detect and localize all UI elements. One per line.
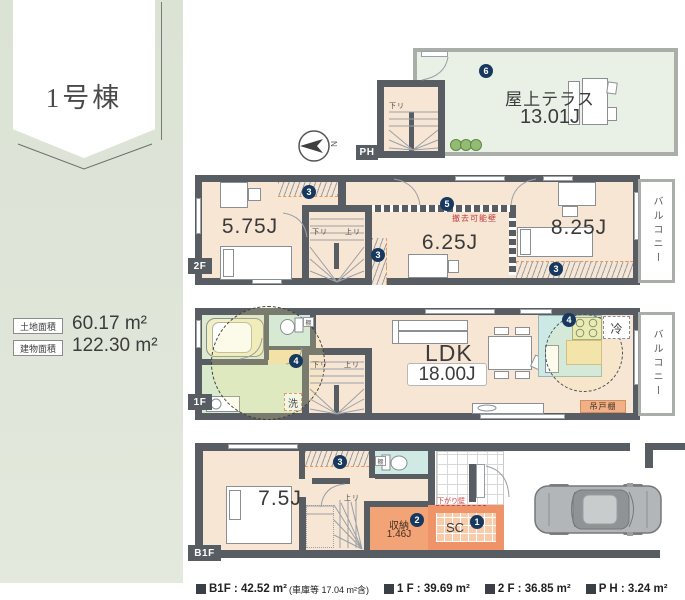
footer-area-summary: B1F : 42.52 m² (車庫等 17.04 m²含) 1 F : 39.…: [196, 580, 685, 598]
floor-tag-ph: PH: [356, 145, 378, 160]
f1-stair-rail: [334, 385, 339, 413]
land-area-label: 土地面積: [20, 320, 56, 333]
hanging-cupboard-label: 吊戸棚: [580, 400, 626, 413]
terrace-chair: [607, 107, 617, 121]
square-bull et-icon: [485, 584, 495, 594]
b1-garage-top-wall: [428, 443, 630, 451]
room-label-6-25j: 6.25J: [405, 231, 495, 255]
building-area-label-box: 建物面積: [13, 340, 63, 356]
marker-2: 2: [410, 513, 424, 527]
dropped-wall-note: 下がり壁: [437, 496, 465, 506]
b1-bottom-wall: [428, 550, 660, 558]
marker-4: 4: [289, 354, 303, 368]
b1-inner-wall: [299, 451, 305, 479]
room-label-7-5j: 7.5J: [238, 487, 322, 511]
f1-tv-board: [472, 403, 544, 414]
f2-stair-up-label: 上リ: [345, 227, 361, 237]
marker-1: 1: [470, 515, 484, 529]
f2-chair: [448, 260, 459, 273]
room-label-5-75j: 5.75J: [208, 215, 292, 239]
marker-3: 3: [549, 262, 563, 276]
square-bullet-icon: [586, 584, 596, 594]
ph-terrace-door-leaf: [421, 51, 448, 57]
f1-shelf-label: 棚: [303, 317, 314, 327]
marker-5: 5: [440, 197, 454, 211]
b1-stair-up-label: 上リ: [344, 493, 360, 503]
f2-balcony-label-wrap: バルコニー: [638, 184, 675, 278]
b1-inner-wall: [375, 474, 428, 479]
b1-inner-wall: [312, 478, 350, 484]
f2-balcony-label: バルコニー: [649, 196, 664, 266]
f1-stair-up-label: 上リ: [344, 360, 360, 370]
f1-dining-table: [488, 336, 532, 370]
b1-entrance-door-leaf: [476, 464, 485, 498]
f1-chair: [494, 371, 509, 379]
terrace-size: 13.01J: [495, 106, 605, 129]
removable-wall-note: 撤去可能壁: [452, 213, 497, 224]
f1-window: [196, 320, 201, 348]
floor-plan-canvas: 土地面積 60.17 m² 建物面積 122.30 m²: [0, 0, 685, 600]
storage-size: 1.46J: [376, 529, 422, 540]
f2-chair: [248, 188, 261, 201]
f1-chair: [515, 327, 530, 335]
marker-3: 3: [302, 185, 316, 199]
ldk-size-box: 18.00J: [407, 363, 487, 386]
f1-window: [425, 309, 495, 314]
f2-desk: [558, 182, 596, 206]
floor-tag-1f: 1F: [188, 394, 212, 410]
f2-stair-down-label: 下リ: [312, 227, 328, 237]
banner-title: 1号棟: [13, 76, 155, 115]
f1-stair-right-wall: [365, 355, 372, 413]
building-area-value: 122.30 m²: [72, 335, 158, 357]
f2-removable-wall-v: [509, 212, 516, 275]
land-area-label-box: 土地面積: [13, 318, 63, 334]
banner-accent-line: [161, 2, 162, 140]
footer-item-text: 1 F : 39.69 m²: [397, 583, 470, 595]
f2-desk: [220, 182, 248, 208]
car-illustration: [535, 483, 661, 536]
land-area-value: 60.17 m²: [72, 313, 147, 335]
building-area-label: 建物面積: [20, 342, 56, 355]
marker-6: 6: [479, 64, 493, 78]
room-label-8-25j: 8.25J: [533, 216, 625, 240]
f2-pillow: [520, 229, 531, 255]
footer-item: B1F : 42.52 m² (車庫等 17.04 m²含): [196, 583, 369, 596]
f1-chair: [494, 327, 509, 335]
footer-item-note: (車庫等 17.04 m²含): [289, 583, 369, 596]
f2-window: [455, 176, 505, 181]
square-bullet-icon: [384, 584, 394, 594]
footer-item: 1 F : 39.69 m²: [384, 583, 470, 595]
square-bullet-icon: [196, 584, 206, 594]
b1-wall-cap: [645, 443, 653, 468]
f1-window: [520, 309, 552, 314]
f1-balcony-label-wrap: バルコニー: [638, 317, 675, 411]
floor-tag-2f: 2F: [188, 258, 212, 274]
f2-pillow: [223, 249, 234, 277]
f2-stair-top-wall: [302, 205, 372, 212]
b1-window: [228, 444, 298, 449]
footer-item-text: P H : 3.24 m²: [599, 583, 668, 595]
f1-sofa-arm: [392, 320, 399, 344]
f1-balcony-label: バルコニー: [649, 329, 664, 399]
f2-stair-left-wall: [302, 212, 309, 285]
ldk-size: 18.00J: [418, 364, 475, 386]
terrace-chair: [606, 81, 618, 94]
floor-tag-b1f: B1F: [188, 545, 221, 561]
footer-item: 2 F : 36.85 m²: [485, 583, 571, 595]
f1-sofa-back: [398, 320, 468, 331]
f2-closet-bottom: [516, 261, 633, 278]
compass-icon: N: [299, 131, 338, 161]
f1-window: [480, 414, 565, 419]
f1-stair-down-label: 下リ: [312, 360, 328, 370]
ph-stair-rail: [409, 112, 414, 151]
f2-desk: [408, 254, 448, 278]
washer-box-label: 洗: [284, 393, 302, 411]
f2-stair-right-wall: [365, 212, 372, 285]
footer-item: P H : 3.24 m²: [586, 583, 668, 595]
marker-3: 3: [371, 248, 385, 262]
f1-chair: [515, 371, 530, 379]
b1-understair-dotted: [306, 505, 334, 548]
b1-top-bar: [653, 443, 685, 450]
footer-item-text: B1F : 42.52 m²: [209, 583, 287, 595]
ph-stair-down-label: 下リ: [389, 101, 405, 111]
fridge-label: 冷: [603, 320, 630, 337]
svg-text:N: N: [329, 141, 338, 147]
marker-4: 4: [562, 313, 576, 327]
f2-window: [543, 176, 573, 181]
b1-shelf-label: 棚: [375, 456, 386, 466]
b1-entrance-wall-stub: [469, 464, 476, 502]
f2-stair-rail: [334, 243, 339, 269]
marker-3: 3: [333, 455, 347, 469]
f2-window: [196, 198, 201, 234]
footer-item-text: 2 F : 36.85 m²: [498, 583, 571, 595]
